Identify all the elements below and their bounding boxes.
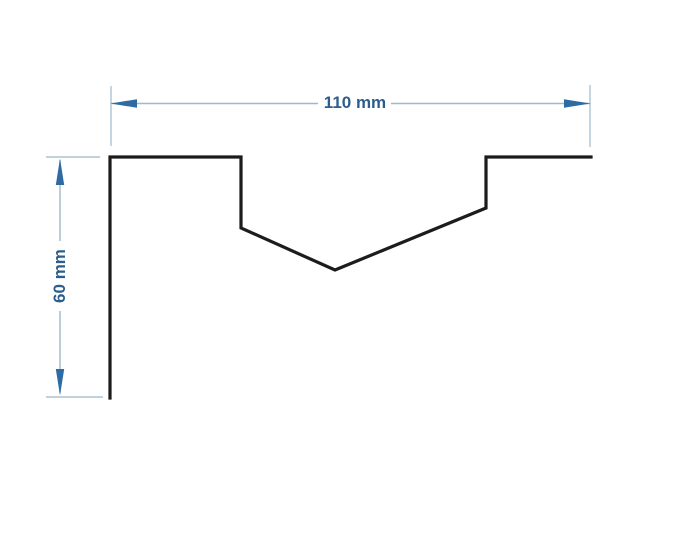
dimension-arrow-down-icon bbox=[56, 369, 64, 396]
height-dimension-label: 60 mm bbox=[51, 249, 69, 303]
width-dimension-label: 110 mm bbox=[309, 94, 401, 112]
dimension-arrow-up-icon bbox=[56, 159, 64, 186]
dimension-arrow-left-icon bbox=[111, 99, 138, 108]
technical-drawing-canvas: 110 mm 60 mm bbox=[0, 0, 675, 540]
dimension-arrow-right-icon bbox=[564, 99, 591, 108]
profile-outline bbox=[110, 157, 591, 398]
profile-drawing-svg bbox=[0, 0, 675, 540]
